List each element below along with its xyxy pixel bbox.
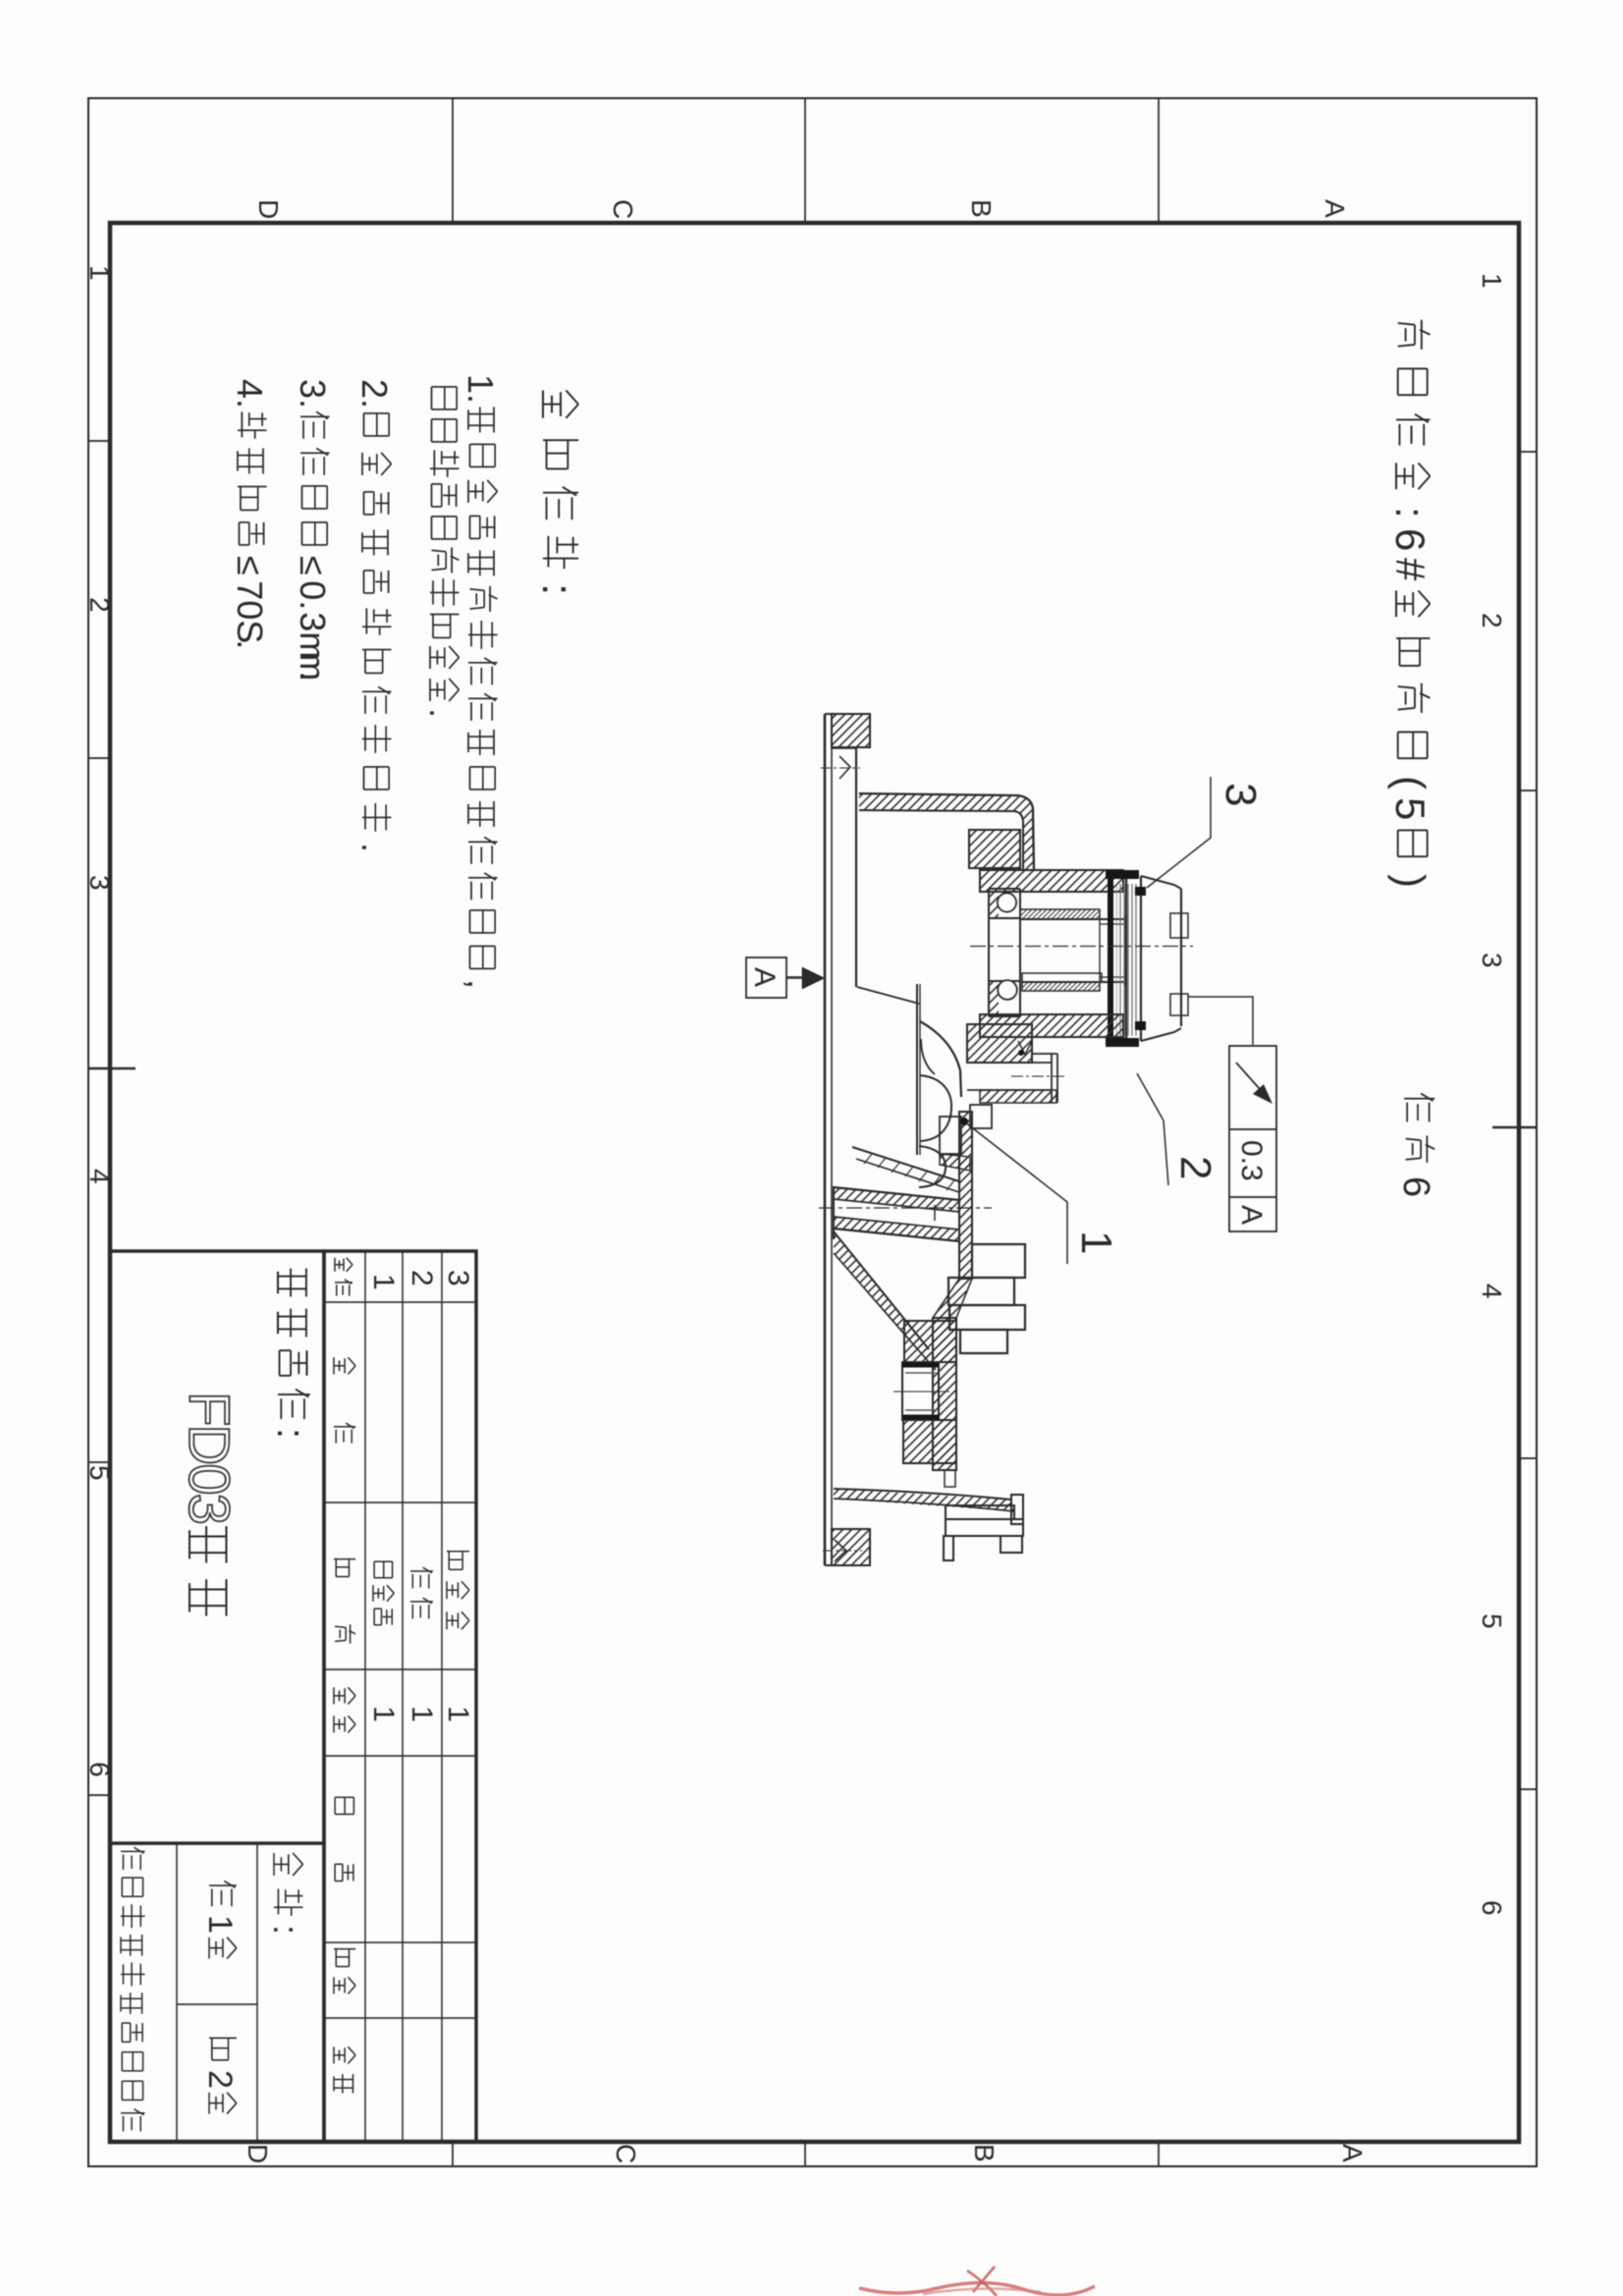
svg-text:2: 2 <box>1171 1156 1219 1179</box>
svg-text:3: 3 <box>442 1270 474 1286</box>
svg-text:1: 1 <box>367 1706 400 1722</box>
svg-text:1: 1 <box>406 1706 438 1722</box>
svg-text::6#: :6# <box>1387 507 1434 581</box>
svg-text:1.: 1. <box>460 374 501 404</box>
svg-text:A: A <box>1337 2144 1368 2162</box>
svg-text:A: A <box>1235 1205 1268 1225</box>
svg-text:≤70S.: ≤70S. <box>230 556 270 649</box>
svg-text:3.: 3. <box>293 379 333 409</box>
svg-text:.: . <box>422 708 462 718</box>
svg-text::: : <box>266 1925 306 1935</box>
svg-text:1: 1 <box>442 1706 474 1722</box>
svg-text:B: B <box>969 2144 1000 2162</box>
svg-text:(5: (5 <box>1387 776 1434 820</box>
svg-text:≤0.3mm.: ≤0.3mm. <box>293 556 333 681</box>
svg-text:1: 1 <box>201 1915 239 1934</box>
svg-text:1: 1 <box>367 1274 400 1290</box>
svg-text:4: 4 <box>84 1169 115 1184</box>
svg-text:FD03: FD03 <box>177 1392 241 1523</box>
svg-text:6: 6 <box>84 1762 115 1777</box>
svg-text:2: 2 <box>406 1270 438 1286</box>
svg-text:3: 3 <box>84 875 115 891</box>
svg-text:D: D <box>253 199 284 219</box>
svg-text:A: A <box>1320 199 1350 218</box>
svg-text:5: 5 <box>1477 1613 1507 1629</box>
svg-text:5: 5 <box>84 1465 115 1481</box>
svg-text:4.: 4. <box>230 379 270 409</box>
svg-text:6: 6 <box>1477 1900 1507 1916</box>
svg-text:1: 1 <box>84 265 115 281</box>
svg-text:2: 2 <box>84 597 115 613</box>
svg-text:A: A <box>748 967 781 987</box>
svg-text:1: 1 <box>1477 273 1507 289</box>
svg-text:2.: 2. <box>354 379 395 409</box>
svg-text:): ) <box>1387 874 1434 888</box>
svg-text:2: 2 <box>1477 613 1507 629</box>
svg-text:6: 6 <box>1395 1176 1436 1197</box>
svg-text:0.3: 0.3 <box>1235 1140 1268 1181</box>
svg-text:3: 3 <box>1477 953 1507 968</box>
svg-text::: : <box>269 1428 312 1439</box>
svg-text:.: . <box>354 843 395 852</box>
svg-text:D: D <box>243 2144 273 2163</box>
svg-text:B: B <box>966 199 997 218</box>
svg-text:3: 3 <box>1217 783 1265 806</box>
svg-text:C: C <box>611 2144 641 2163</box>
svg-text::: : <box>533 583 581 595</box>
svg-text:4: 4 <box>1477 1284 1507 1299</box>
svg-text:C: C <box>608 199 638 219</box>
svg-text:,: , <box>460 979 501 989</box>
svg-text:1: 1 <box>1072 1230 1120 1254</box>
svg-text:2: 2 <box>201 2070 239 2089</box>
